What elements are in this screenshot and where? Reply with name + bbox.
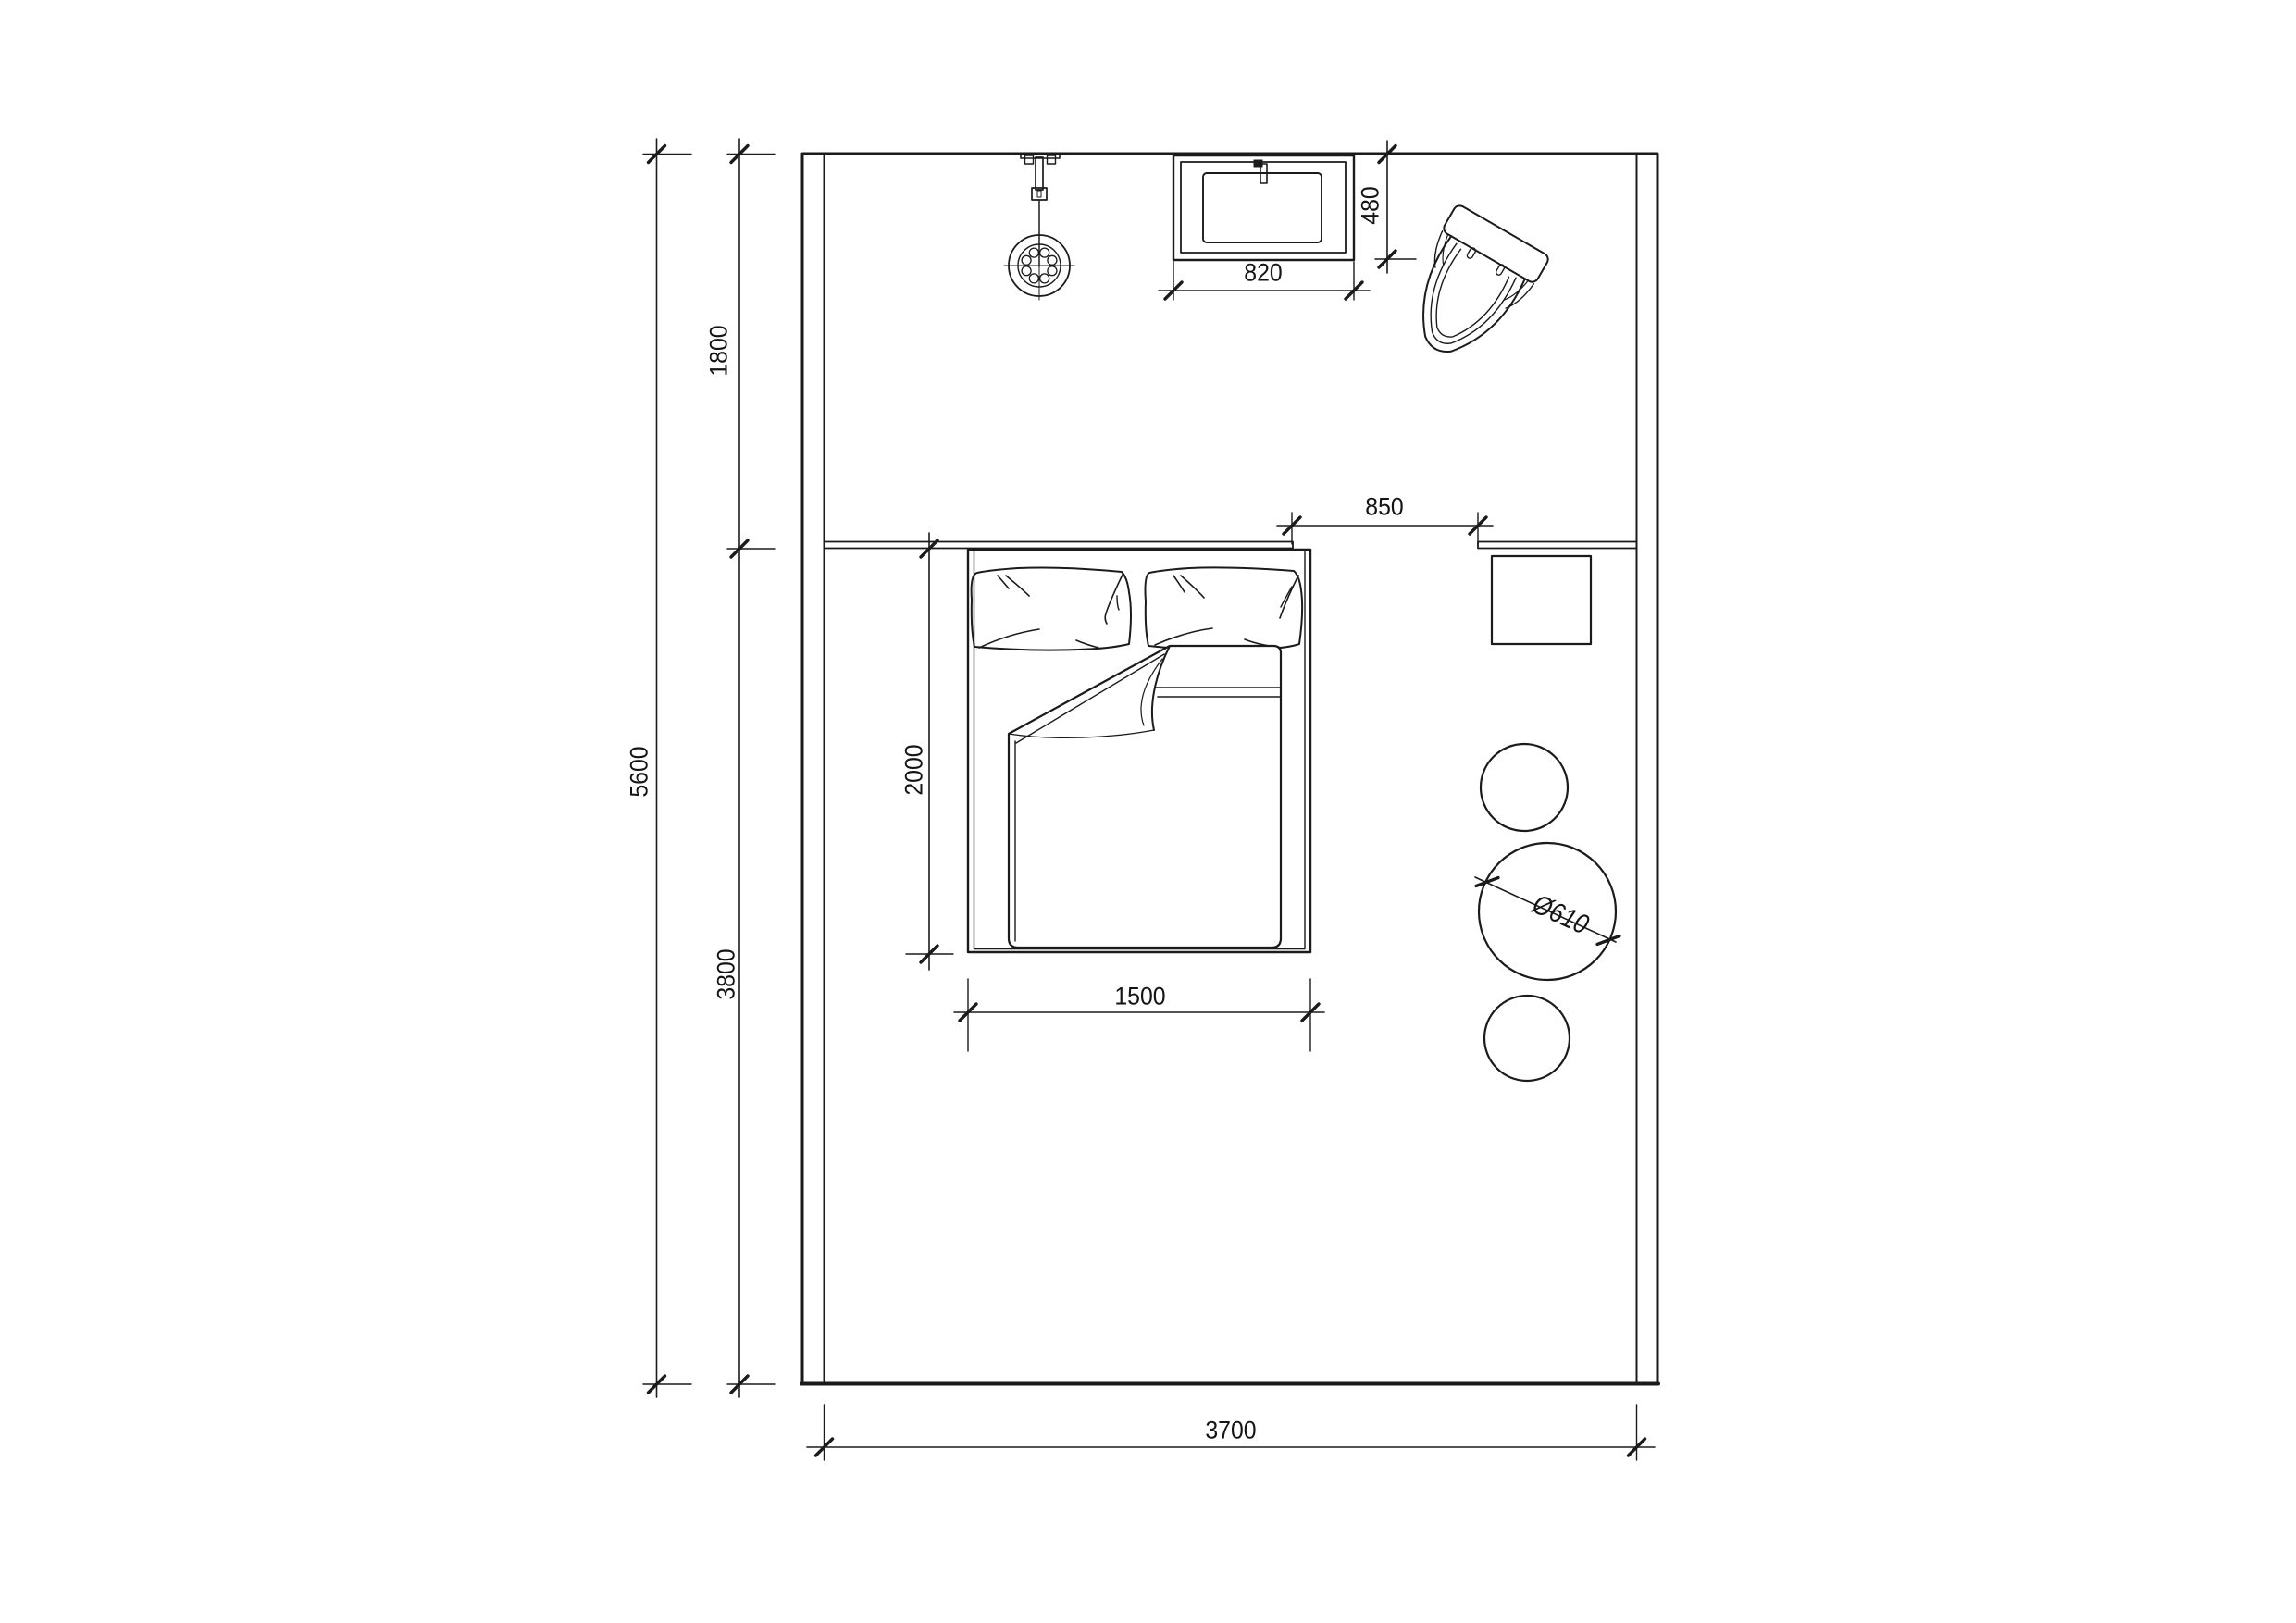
pillow-left-crease6 (1076, 640, 1098, 648)
vanity-counter (1173, 155, 1354, 260)
toilet-shell-right (1506, 278, 1533, 314)
floor-plan-svg (0, 0, 2296, 1623)
toilet-hinge-right (1495, 264, 1505, 276)
pillow-left-crease1 (998, 576, 1009, 588)
pillow-right-crease2 (1181, 576, 1204, 598)
toilet-seat (1409, 243, 1517, 359)
pillow-left-crease3 (1105, 575, 1123, 624)
pillow-right-crease4 (1281, 587, 1292, 607)
shower-handle-detail (1037, 191, 1041, 197)
dim-label-bed-width: 1500 (1114, 985, 1165, 1010)
stool-bottom (1484, 996, 1570, 1081)
partition-wall (825, 542, 1637, 549)
toilet-hinge-left (1466, 247, 1476, 259)
pillow-left-crease4 (1117, 596, 1119, 610)
pillow-right-outline (1146, 567, 1303, 650)
nightstand (1492, 556, 1591, 644)
pillow-right-crease3 (1280, 576, 1298, 618)
dim-label-passage-opening: 850 (1365, 495, 1403, 520)
folded-duvet (1009, 646, 1281, 948)
toilet-bowl-outer (1397, 236, 1526, 371)
toilet-shell-left (1425, 231, 1453, 267)
stool-top (1481, 744, 1568, 831)
shower-head (1004, 154, 1074, 301)
pillow-left (972, 568, 1131, 650)
vanity-basin (1173, 155, 1354, 260)
faucet-head (1254, 160, 1262, 167)
pillow-left-crease2 (1006, 576, 1029, 596)
partition-left-segment (825, 542, 1294, 549)
partition-right-segment (1478, 542, 1637, 549)
dim-label-bath-zone-depth: 1800 (707, 325, 732, 376)
dim-label-bed-length: 2000 (902, 744, 927, 795)
dim-label-vanity-depth: 480 (1359, 186, 1384, 224)
pillow-right (1146, 567, 1303, 650)
pillow-right-crease5 (1155, 628, 1212, 645)
pillow-left-crease5 (979, 629, 1039, 648)
dim-label-bedroom-depth: 3800 (714, 948, 739, 999)
double-bed (968, 550, 1310, 952)
shower-slide-bar (1036, 157, 1043, 190)
toilet (1389, 204, 1550, 376)
shower-clip-right (1048, 155, 1056, 164)
dim-label-room-width: 3700 (1205, 1419, 1256, 1443)
dim-label-room-depth: 5600 (627, 746, 652, 797)
floor-plan-canvas: 5600 1800 3800 3700 820 480 850 2000 150… (0, 0, 2296, 1623)
dim-label-vanity-width: 820 (1244, 261, 1282, 286)
dim-zones-1800-3800 (727, 139, 775, 1397)
shower-clip-left (1025, 155, 1034, 164)
